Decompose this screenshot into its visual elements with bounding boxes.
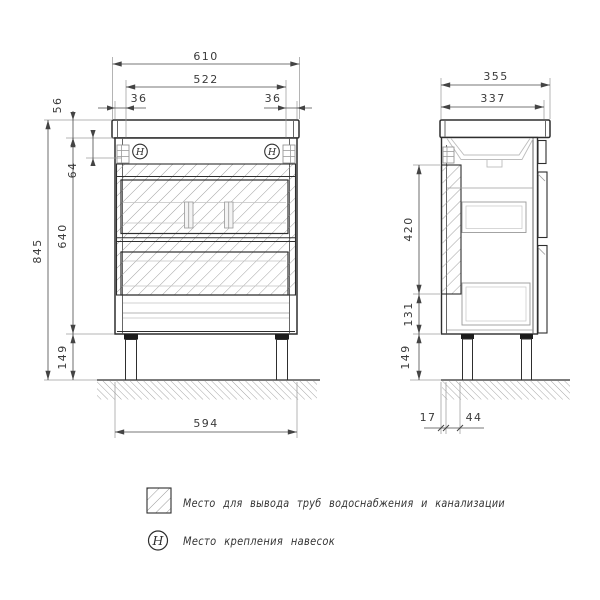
hanger-letter: H	[267, 147, 277, 158]
dim-side-back-gap: 17	[420, 411, 437, 424]
dim-front-inset-left: 36	[131, 92, 148, 105]
dim-side-depth-inner: 337	[480, 92, 505, 105]
hanger-bracket-right	[283, 145, 295, 163]
dim-side-back-inset: 44	[466, 411, 483, 424]
hanger-letter: H	[135, 147, 145, 158]
dim-front-hanger-drop: 64	[66, 162, 79, 179]
dim-side-leg-height: 149	[399, 344, 412, 369]
dim-front-body-height: 640	[56, 223, 69, 248]
front-pipe-hatch-area	[117, 164, 296, 295]
dim-side-depth-top: 355	[483, 70, 508, 83]
front-countertop	[112, 120, 299, 138]
hanger-symbol-right: H	[265, 144, 280, 159]
legend-hangers-label: Место крепления навесок	[183, 534, 335, 548]
side-countertop	[440, 120, 550, 138]
hatched-square-icon	[147, 488, 171, 513]
hanger-bracket-left	[117, 145, 129, 163]
dim-front-countertop-height: 56	[51, 97, 64, 114]
side-pipe-hatch-strip	[442, 165, 462, 294]
vanity-dimension-drawing: H H	[0, 0, 600, 600]
side-hanger-bracket	[443, 147, 454, 163]
dim-side-lower-height: 131	[402, 301, 415, 326]
dim-front-width-inner: 522	[193, 73, 218, 86]
legend-pipes-label: Место для вывода труб водоснабжения и ка…	[183, 496, 505, 510]
dim-front-width-bottom: 594	[193, 417, 218, 430]
dim-side-pipe-zone-height: 420	[402, 216, 415, 241]
dim-front-total-height: 845	[31, 238, 44, 263]
technical-drawing-page: H H	[0, 0, 600, 600]
dim-front-leg-height: 149	[56, 344, 69, 369]
hanger-symbol-left: H	[133, 144, 148, 159]
legend-h-letter: H	[152, 533, 165, 548]
dim-front-width-top: 610	[193, 50, 218, 63]
dim-front-inset-right: 36	[265, 92, 282, 105]
